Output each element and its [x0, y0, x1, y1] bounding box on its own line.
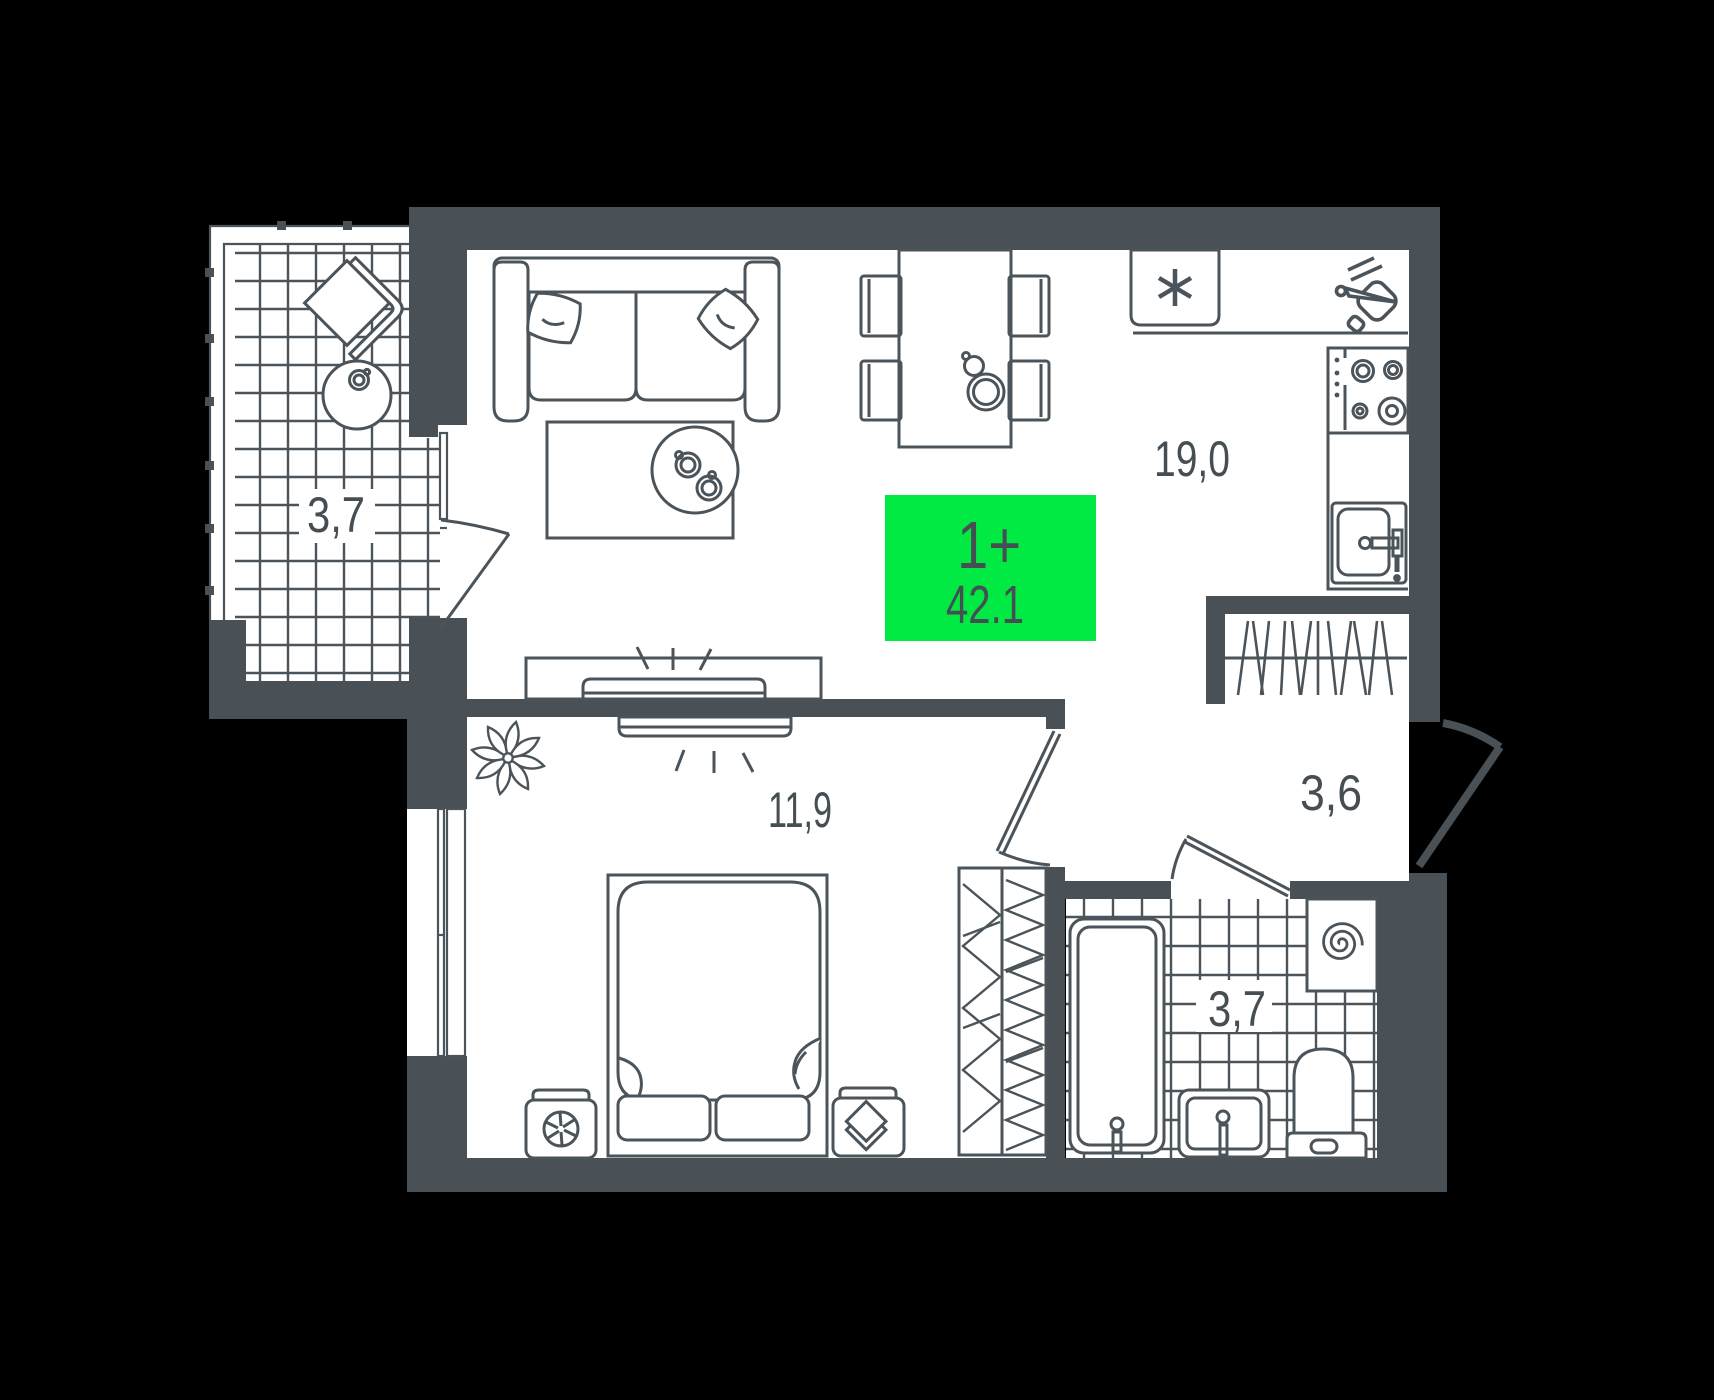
svg-text:42.1: 42.1 [946, 575, 1024, 635]
svg-text:1+: 1+ [957, 508, 1021, 583]
svg-text:11,9: 11,9 [768, 782, 832, 838]
svg-text:19,0: 19,0 [1154, 431, 1230, 487]
svg-text:3,7: 3,7 [1208, 981, 1266, 1037]
svg-text:3,6: 3,6 [1300, 765, 1362, 821]
svg-text:3,7: 3,7 [307, 487, 365, 543]
